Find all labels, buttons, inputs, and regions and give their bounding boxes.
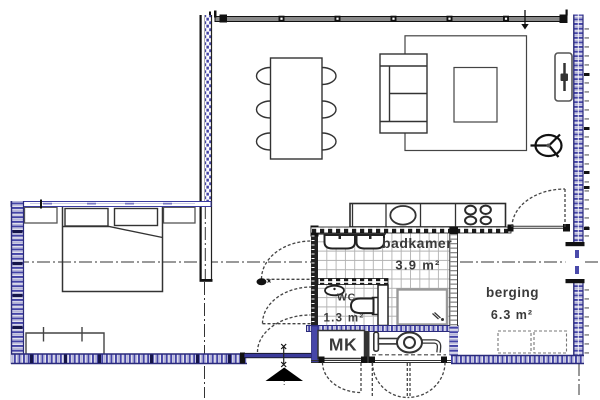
svg-text:WC: WC (337, 292, 356, 304)
svg-text:3.9 m²: 3.9 m² (395, 258, 440, 273)
svg-text:badkamer: badkamer (382, 235, 452, 251)
svg-text:1.3 m²: 1.3 m² (323, 313, 364, 325)
svg-text:MK: MK (329, 335, 357, 355)
svg-text:berging: berging (486, 285, 539, 300)
svg-text:6.3 m²: 6.3 m² (491, 308, 533, 322)
